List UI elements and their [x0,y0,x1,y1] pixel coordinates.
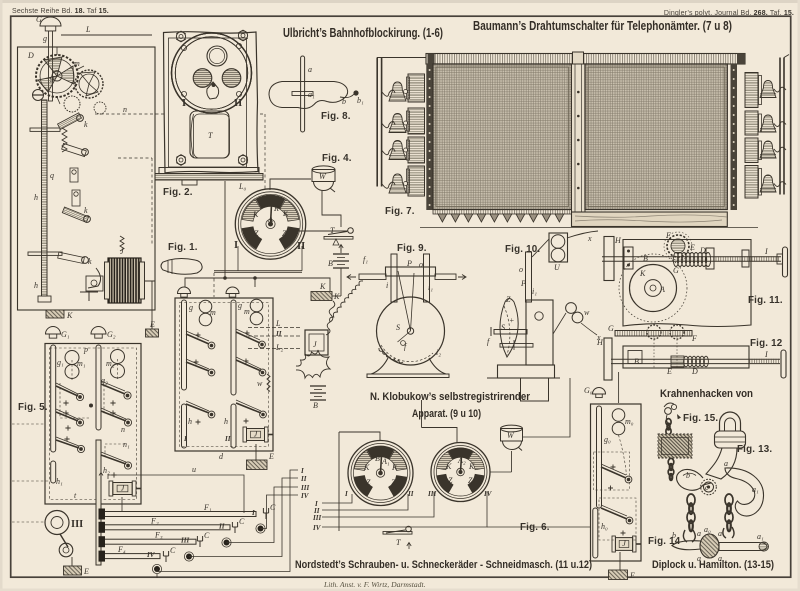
svg-text:i₂: i₂ [436,348,441,357]
svg-text:A: A [267,215,273,224]
svg-text:k: k [84,206,88,215]
svg-text:m: m [244,307,250,316]
svg-text:E: E [149,320,155,329]
svg-text:i: i [386,281,388,290]
svg-text:G₁: G₁ [61,330,70,339]
svg-text:i₁: i₁ [428,283,433,292]
svg-text:f₁: f₁ [363,255,368,264]
svg-text:B: B [634,357,639,366]
svg-text:I: I [344,490,348,498]
svg-text:h: h [224,417,228,426]
svg-text:II: II [275,330,282,338]
svg-text:a₀: a₀ [704,525,711,534]
svg-text:Z: Z [282,229,287,238]
svg-text:Z: Z [366,478,371,487]
svg-text:III: III [71,519,83,530]
svg-text:g: g [50,73,54,82]
svg-text:Sechste Reihe Bd. 18. Taf 15.: Sechste Reihe Bd. 18. Taf 15. [12,8,109,15]
svg-text:k: k [84,120,88,129]
svg-text:Fig. 9.: Fig. 9. [397,243,427,254]
svg-text:F₂: F₂ [150,516,159,525]
svg-text:F: F [691,334,697,343]
svg-text:a₁: a₁ [757,532,764,541]
svg-text:K: K [319,282,326,291]
svg-text:c: c [705,483,709,492]
svg-text:C: C [204,531,210,540]
svg-text:P: P [520,279,526,288]
svg-text:q: q [50,171,54,180]
svg-text:g: g [238,301,242,310]
svg-text:S: S [501,323,505,332]
svg-text:K: K [66,311,73,320]
svg-text:D: D [27,51,34,60]
svg-text:I: I [183,435,187,443]
svg-text:K: K [333,292,340,301]
svg-text:G: G [36,15,42,24]
svg-text:L: L [275,319,281,328]
svg-text:L₂: L₂ [275,343,283,352]
svg-text:Z: Z [468,476,473,485]
svg-text:m: m [210,308,216,317]
svg-text:B: B [328,259,333,268]
svg-text:h₂: h₂ [103,466,110,475]
svg-text:J: J [622,539,626,548]
svg-text:Fig. 5.: Fig. 5. [18,402,48,413]
svg-text:T: T [396,538,401,547]
svg-text:III: III [427,490,436,498]
svg-text:h: h [34,193,38,202]
svg-text:w: w [584,308,590,317]
svg-text:S: S [396,323,400,332]
svg-text:Fig. 1.: Fig. 1. [168,242,198,253]
svg-text:Diplock u. Hamilton. (13-15): Diplock u. Hamilton. (13-15) [652,559,774,571]
svg-text:g: g [189,303,193,312]
svg-text:w: w [257,379,263,388]
svg-text:m: m [74,59,80,68]
svg-text:Fig. 6.: Fig. 6. [520,522,550,533]
svg-text:Baumann’s Drahtumschalter für: Baumann’s Drahtumschalter für Telephonäm… [473,18,732,33]
svg-text:II: II [300,475,307,483]
svg-text:III: III [312,514,321,522]
svg-text:I: I [234,240,238,251]
svg-text:Fig. 4.: Fig. 4. [322,153,352,164]
svg-text:L₀: L₀ [238,182,246,191]
svg-text:G₀: G₀ [584,386,593,395]
svg-text:III: III [300,484,309,492]
svg-text:a₁: a₁ [752,485,759,494]
svg-text:i₁: i₁ [532,287,537,296]
svg-text:IV: IV [300,492,310,500]
svg-text:K: K [468,462,475,471]
svg-text:b₁: b₁ [357,96,364,105]
svg-text:T: T [330,226,335,235]
svg-text:Fig. 13.: Fig. 13. [737,444,772,455]
svg-text:F: F [665,231,671,240]
svg-text:x: x [587,234,592,243]
svg-text:a: a [718,529,722,538]
svg-text:Fig. 15.: Fig. 15. [683,413,718,424]
svg-text:Fig. 2.: Fig. 2. [163,187,193,198]
svg-text:II: II [224,435,231,443]
svg-text:J: J [313,340,317,349]
svg-text:II: II [297,241,305,252]
svg-text:P: P [406,259,412,268]
svg-text:g₁: g₁ [57,358,64,367]
svg-text:o: o [419,260,423,269]
svg-text:+: + [509,316,514,325]
svg-text:B: B [313,401,318,410]
svg-text:g₀: g₀ [604,435,611,444]
svg-text:G₂: G₂ [107,330,116,339]
svg-text:E: E [689,243,695,252]
svg-text:K: K [252,210,259,219]
svg-text:m₀: m₀ [625,417,634,426]
svg-text:IV: IV [483,490,493,498]
svg-text:J: J [254,429,258,438]
svg-text:b: b [342,97,346,106]
svg-text:k: k [88,257,92,266]
svg-text:Krahnenhacken von: Krahnenhacken von [660,388,753,400]
svg-text:Z: Z [391,478,396,487]
svg-text:n: n [121,425,125,434]
svg-text:N. Klobukow’s selbstregistrire: N. Klobukow’s selbstregistrirender [370,391,531,403]
svg-text:R: R [273,204,279,213]
svg-text:I: I [764,247,768,256]
svg-text:C: C [270,503,276,512]
svg-text:C: C [170,546,176,555]
svg-text:p: p [83,345,88,354]
svg-text:IV: IV [312,524,322,532]
svg-text:a: a [308,65,312,74]
svg-text:Fig. 7.: Fig. 7. [385,206,415,217]
svg-text:a: a [697,529,701,538]
svg-text:u: u [192,465,196,474]
svg-text:E: E [629,571,635,580]
svg-text:Fig. 11.: Fig. 11. [748,295,783,306]
svg-text:F₃: F₃ [154,531,163,540]
svg-text:Apparat. (9 u 10): Apparat. (9 u 10) [412,408,481,420]
svg-text:F₄: F₄ [117,545,126,554]
svg-text:h: h [34,281,38,290]
svg-text:m₂: m₂ [106,359,115,368]
svg-text:I: I [182,98,186,109]
svg-text:D: D [691,367,698,376]
svg-text:m₁: m₁ [77,359,86,368]
svg-text:g: g [43,34,47,43]
svg-text:E: E [268,452,274,461]
svg-text:J: J [120,247,124,256]
svg-text:C: C [239,517,245,526]
svg-text:II: II [218,522,225,530]
svg-text:Z: Z [448,476,453,485]
svg-text:D: D [699,246,706,255]
svg-text:b: b [672,531,676,540]
svg-text:I: I [764,350,768,359]
svg-text:Nordstedt’s Schrauben- u. Schn: Nordstedt’s Schrauben- u. Schneckeräder … [295,559,592,571]
svg-text:K: K [363,463,370,472]
svg-text:K: K [445,462,452,471]
svg-text:L: L [85,25,91,34]
svg-text:A: A [659,285,665,294]
svg-text:G: G [608,324,614,333]
svg-text:Fig. 8.: Fig. 8. [321,111,351,122]
svg-text:Z: Z [254,229,259,238]
svg-text:Dingler’s polyt. Journal Bd. 2: Dingler’s polyt. Journal Bd. 268. Taf. 1… [664,10,794,17]
svg-text:n₁: n₁ [123,440,130,449]
svg-text:h₀: h₀ [601,522,608,531]
svg-text:b: b [686,471,690,480]
svg-text:K: K [391,463,398,472]
svg-text:n: n [123,105,127,114]
svg-text:h₁: h₁ [56,477,63,486]
svg-text:G: G [673,266,679,275]
svg-text:A₁: A₁ [381,457,390,466]
svg-text:F₁: F₁ [203,503,212,512]
svg-text:K: K [282,209,289,218]
svg-text:K: K [639,269,646,278]
svg-text:B: B [375,454,380,463]
svg-text:Ulbricht’s Bahnhofblockirung.: Ulbricht’s Bahnhofblockirung. (1-6) [283,25,443,40]
svg-text:o: o [519,265,523,274]
svg-text:A₂: A₂ [457,456,466,465]
svg-text:T: T [208,131,213,140]
svg-text:III: III [180,537,189,545]
svg-text:E: E [666,367,672,376]
svg-text:a₁: a₁ [308,90,315,99]
svg-text:II: II [234,98,242,109]
svg-text:h: h [188,417,192,426]
svg-text:I: I [251,509,255,517]
svg-text:I: I [300,467,304,475]
svg-text:Fig. 12: Fig. 12 [750,338,783,349]
svg-text:E: E [83,567,89,576]
svg-text:Lith. Anst. v. F. Wirtz, Darms: Lith. Anst. v. F. Wirtz, Darmstadt. [323,580,426,589]
svg-text:IV: IV [146,551,156,559]
svg-text:a: a [724,459,728,468]
svg-text:J: J [121,483,125,492]
